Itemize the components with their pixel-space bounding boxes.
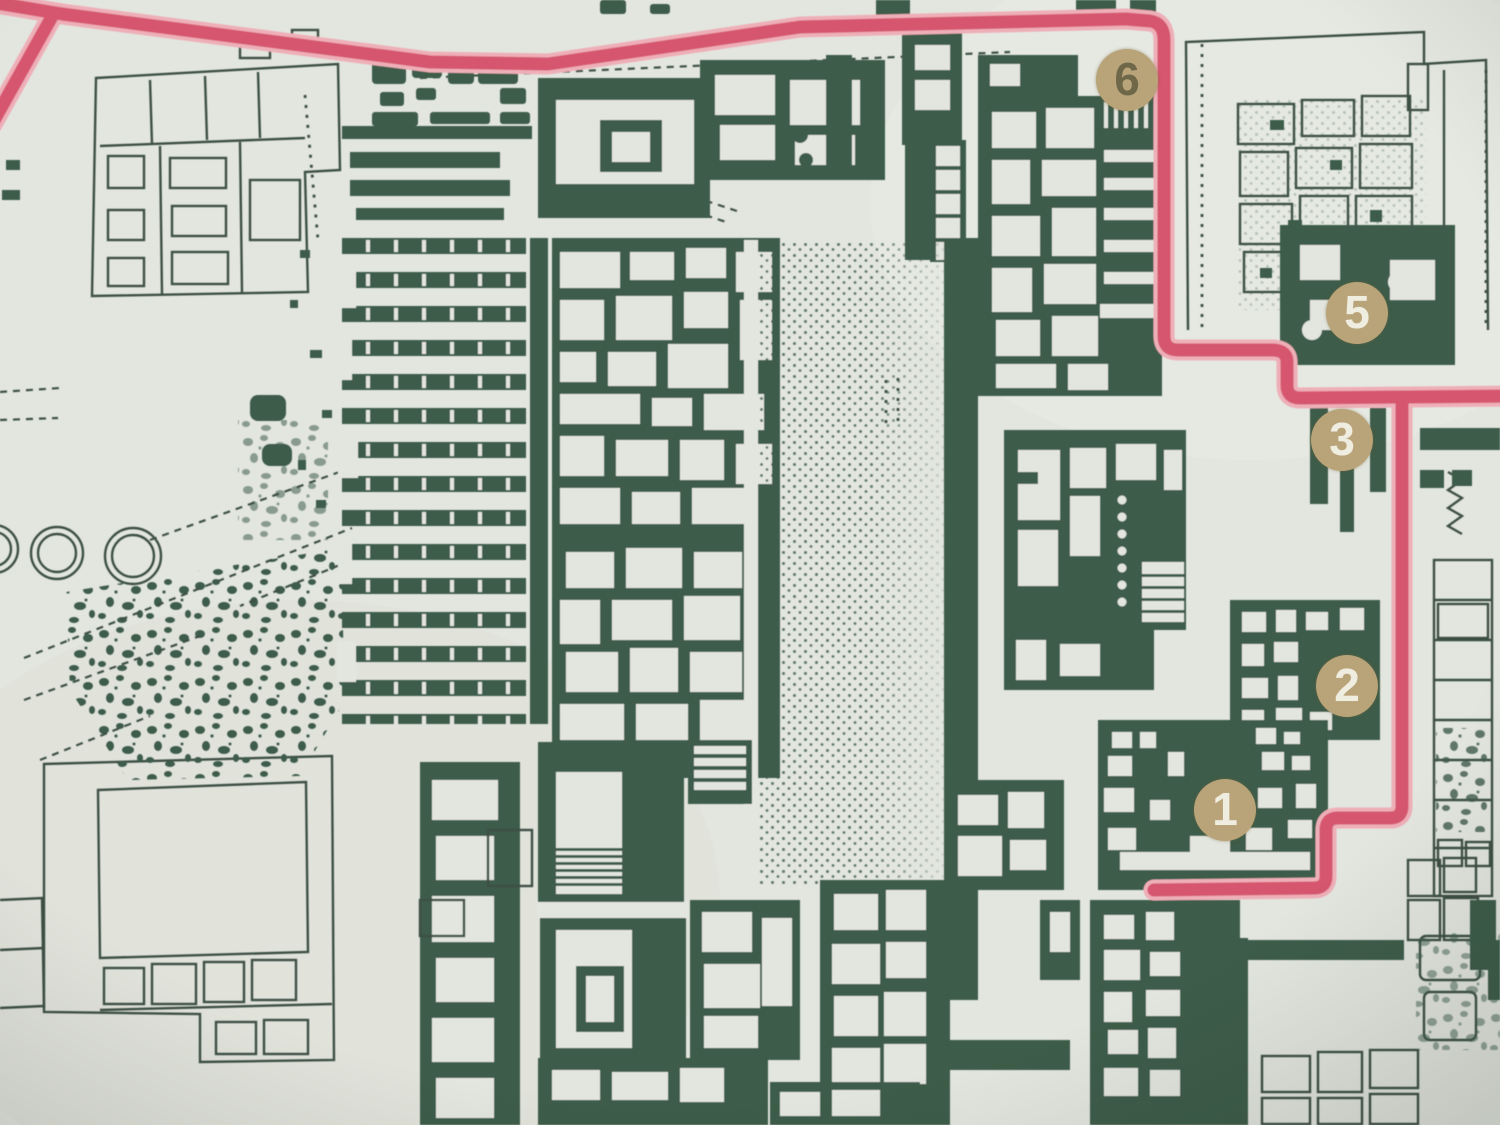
map-marker-1[interactable]: 1: [1194, 779, 1256, 841]
map-photo: 65321: [0, 0, 1500, 1125]
map-marker-3[interactable]: 3: [1311, 409, 1373, 471]
map-marker-2[interactable]: 2: [1316, 655, 1378, 717]
marker-number: 3: [1329, 416, 1355, 462]
marker-number: 5: [1344, 289, 1370, 335]
map-marker-5[interactable]: 5: [1326, 282, 1388, 344]
marker-layer: 65321: [0, 0, 1500, 1125]
map-marker-6[interactable]: 6: [1096, 49, 1158, 111]
marker-number: 1: [1212, 786, 1238, 832]
marker-number: 6: [1114, 56, 1140, 102]
marker-number: 2: [1334, 662, 1360, 708]
